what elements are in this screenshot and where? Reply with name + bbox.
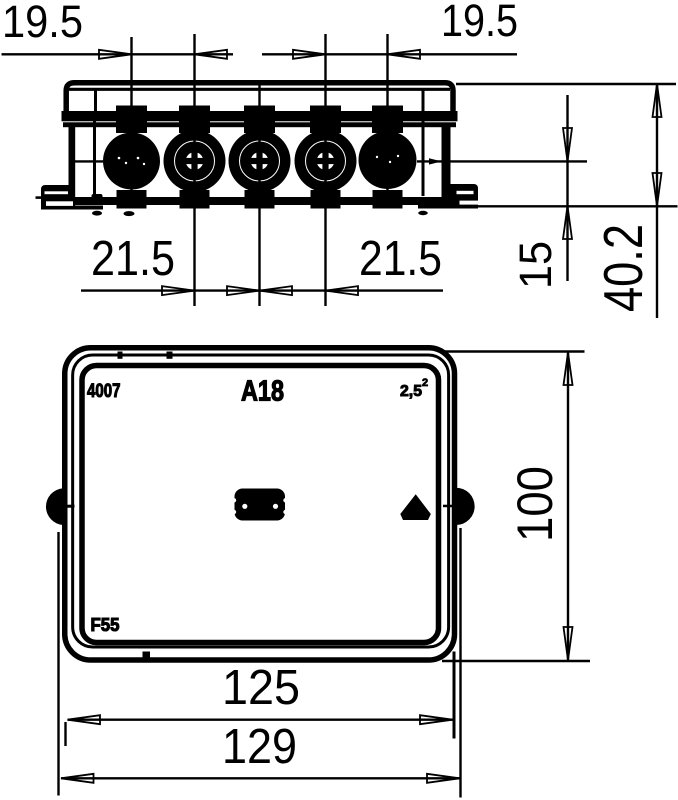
svg-text:100: 100 — [507, 466, 563, 542]
svg-text:129: 129 — [222, 720, 297, 774]
svg-text:2: 2 — [422, 377, 428, 389]
svg-text:21.5: 21.5 — [91, 232, 175, 286]
svg-text:125: 125 — [222, 661, 300, 715]
svg-text:2,5: 2,5 — [400, 383, 422, 400]
svg-text:F55: F55 — [91, 615, 120, 635]
svg-text:4007: 4007 — [87, 380, 121, 402]
svg-text:21.5: 21.5 — [359, 232, 442, 286]
svg-text:19.5: 19.5 — [441, 0, 518, 46]
svg-text:19.5: 19.5 — [2, 0, 83, 47]
svg-text:15: 15 — [510, 241, 561, 289]
svg-text:40.2: 40.2 — [592, 224, 654, 312]
svg-text:A18: A18 — [241, 376, 284, 408]
